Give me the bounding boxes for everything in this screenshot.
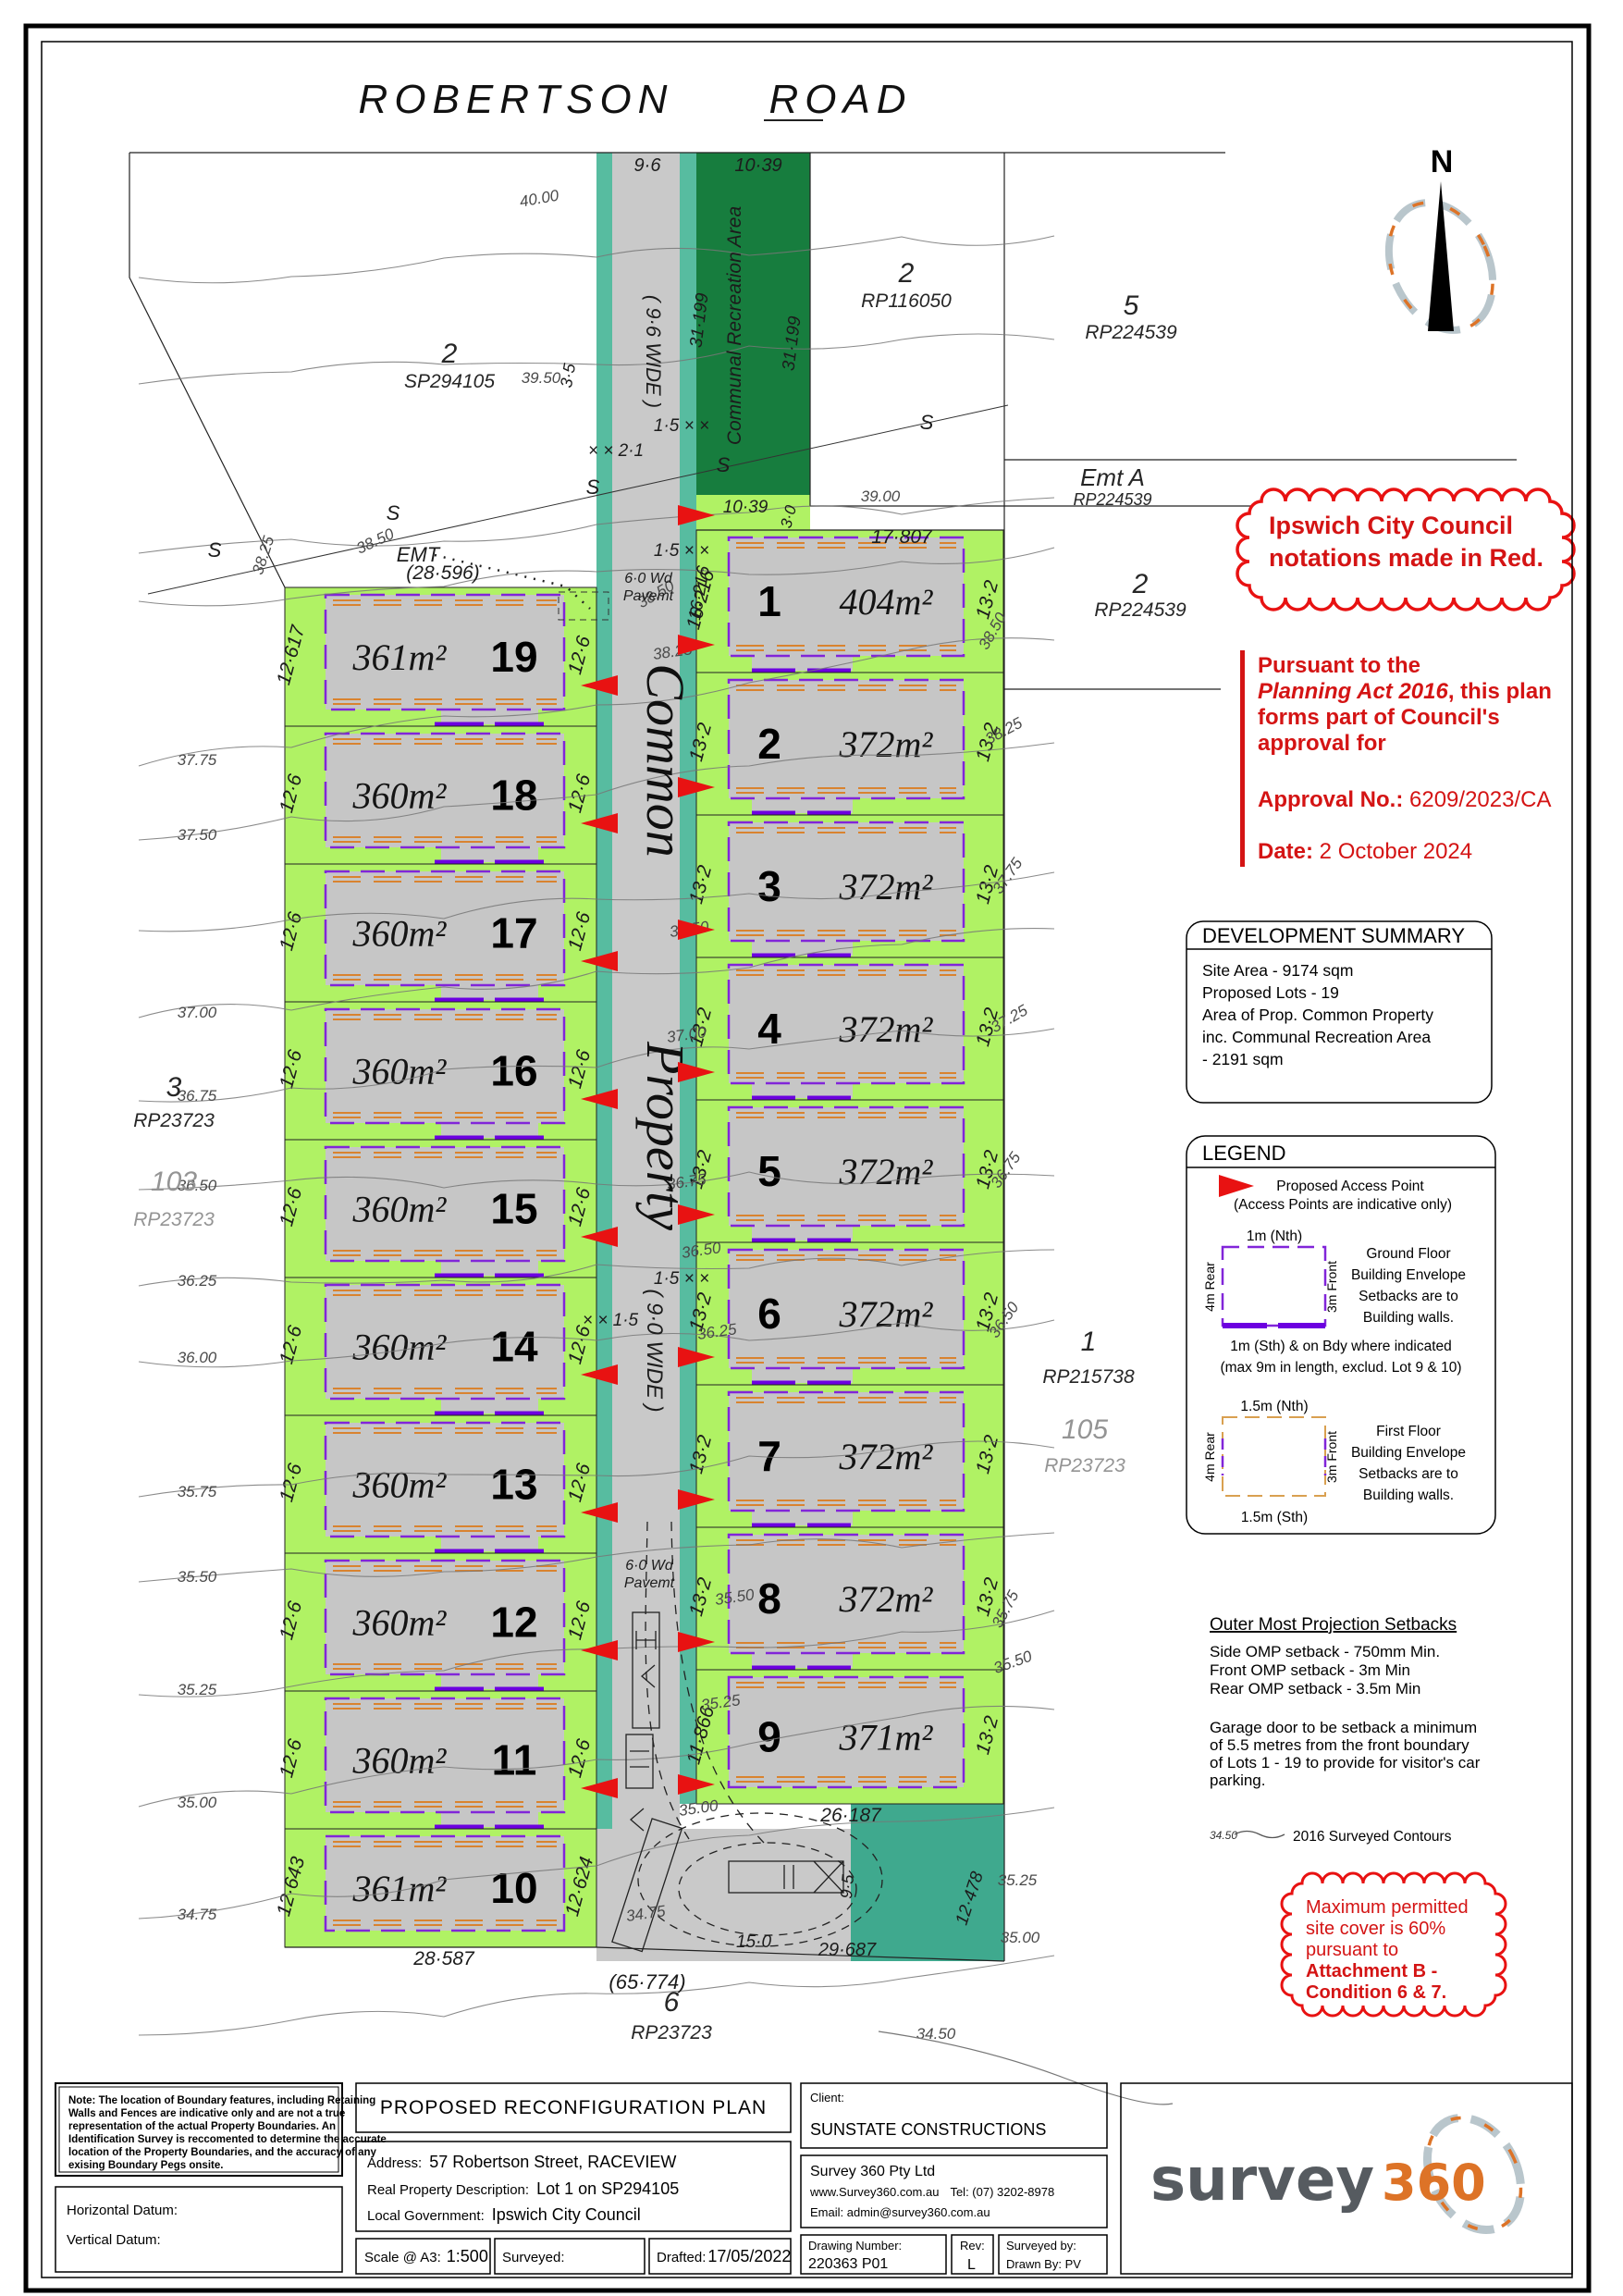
lot-number: 16 [490,1047,537,1095]
plan-label: × × 2·1 [588,441,644,461]
legend-access1: Proposed Access Point [1276,1179,1424,1194]
contour-label: 35.50 [178,1568,217,1586]
lot-number: 17 [490,909,537,957]
lot-number: 8 [757,1574,781,1623]
legend-gtext: Setbacks are to [1359,1289,1458,1304]
lot-area: 372m² [839,1293,934,1335]
cover-line: Maximum permitted [1306,1897,1469,1918]
legend-gtext: Building Envelope [1351,1267,1466,1283]
contour-label: 38.25 [249,534,277,577]
lot-2: 2372m²13·213·228·194 [685,673,1003,837]
adjoining-parcel-6: 6RP23723 [631,1987,712,2043]
lot-area: 372m² [839,1436,934,1477]
title-block: Note: The location of Boundary features,… [55,2083,1572,2274]
legend-gtext: Ground Floor [1366,1246,1450,1262]
approval-no: Approval No.: 6209/2023/CA [1258,787,1551,812]
contour-key: 34.50 2016 Surveyed Contours [1210,1829,1452,1845]
contour-label: 34.50 [916,2025,956,2043]
local-govt-row: Local Government:Ipswich City Council [367,2205,641,2224]
vertical-datum: Vertical Datum: [67,2232,161,2248]
adjoining-parcel-Emt A: Emt ARP224539 [1073,463,1151,509]
contour-key-label: 2016 Surveyed Contours [1293,1829,1452,1845]
plan-label: 6·0 Wd [624,571,673,586]
note-line: location of the Property Boundaries, and… [68,2147,377,2158]
surveyed-cell: Surveyed: [502,2250,565,2265]
plan-label: 29·687 [818,1940,877,1960]
client-name: SUNSTATE CONSTRUCTIONS [810,2120,1046,2139]
red-bar [1240,650,1245,867]
contour-label: 37.50 [178,826,217,844]
legend-note2: (max 9m in length, exclud. Lot 9 & 10) [1220,1360,1461,1376]
parcel-plan: RP23723 [133,1209,215,1230]
adjoining-parcel-2: 2RP224539 [1094,569,1187,621]
lot-8: 8372m²13·213·228·189 [685,1527,1003,1692]
lot-area: 360m² [352,1602,448,1644]
plan-label: S [717,453,731,476]
lot-number: 18 [490,772,537,820]
contour-line [139,1956,1054,2035]
rev-value: L [967,2257,976,2273]
note-line: representation of the actual Property Bo… [68,2121,336,2132]
drawing-number-label: Drawing Number: [808,2239,902,2253]
plan-label: S [208,538,222,562]
pursuant-l3: forms part of Council's [1258,705,1500,730]
logo-survey-text: survey [1150,2146,1374,2215]
contour-key-squiggle [1235,1832,1285,1838]
omp-line: Rear OMP setback - 3.5m Min [1210,1680,1420,1697]
parcel-lot: 2 [441,339,458,369]
parcel-lot: 105 [1062,1414,1108,1445]
lot-10: 10361m²12·64312·62428·587 [273,1829,597,1969]
lot-number: 7 [757,1432,781,1480]
lot-number: 11 [492,1736,537,1784]
contour-key-value: 34.50 [1210,1829,1237,1842]
dev-line: Site Area - 9174 sqm [1202,961,1353,980]
adjoining-parcel-1: 1RP215738 [1042,1327,1135,1388]
plan-label: ( 9·0 WIDE ) [642,1289,667,1412]
omp-title: Outer Most Projection Setbacks [1210,1615,1457,1635]
plan-label: 9·6 [634,155,662,176]
legend-ftext: First Floor [1376,1424,1441,1439]
drafted-cell: Drafted:17/05/2022 [657,2247,791,2265]
logo-360-text: 360 [1382,2154,1486,2212]
parcel-lot: 2 [1132,569,1149,599]
legend-ground-right: 3m Front [1324,1261,1339,1313]
lot-7: 7372m²13·213·228·190 [685,1385,1003,1549]
contour-label: 39.50 [522,369,561,387]
legend-ground-left: 4m Rear [1202,1262,1217,1312]
road-verge-west [596,153,612,1850]
lot-1: 1404m²16·21613·228·19517·807 [682,526,1003,695]
garage-note: Garage door to be setback a minimum [1210,1719,1477,1736]
lot-number: 1 [757,577,781,625]
lot-area: 372m² [839,1578,934,1620]
lot-17: 17360m²12·612·628·593 [276,864,596,1024]
legend-ftext: Setbacks are to [1359,1466,1458,1482]
adjoining-parcel-105: 105RP23723 [1044,1414,1125,1476]
legend-note1: 1m (Sth) & on Bdy where indicated [1230,1339,1452,1354]
parcel-lot: 6 [664,1987,680,2018]
lot-number: 3 [757,862,781,910]
road-verge-east [680,153,696,1804]
client-label: Client: [810,2091,844,2105]
contour-label: 35.25 [998,1871,1038,1889]
contour-label: 35.25 [178,1681,217,1698]
north-label: N [1431,144,1454,179]
contour-label: 34.75 [178,1906,217,1923]
lot-number: 6 [757,1290,781,1338]
drawn-by: Drawn By: PV [1006,2257,1081,2271]
pursuant-l4: approval for [1258,731,1386,756]
survey360-logo: survey 360 [1150,2102,1540,2246]
lot-dim-bottom: 28·587 [412,1948,475,1969]
firm-contact: www.Survey360.com.auTel: (07) 3202-8978 [809,2185,1054,2199]
cover-line: pursuant to [1306,1940,1398,1960]
pursuant-l2: Planning Act 2016, this plan [1258,679,1552,704]
cover-bold: Attachment B - [1306,1961,1437,1981]
legend-access2: (Access Points are indicative only) [1234,1197,1452,1213]
plan-label: 1·5 × × [654,416,709,436]
lot-area: 360m² [352,1464,448,1506]
contour-label: 35.00 [1001,1929,1040,1946]
lot-area: 372m² [839,723,934,765]
lot-area: 404m² [840,581,934,623]
garage-note: parking. [1210,1771,1265,1789]
parcel-plan: RP215738 [1042,1366,1135,1388]
legend-ground-top: 1m (Nth) [1247,1228,1302,1244]
dev-summary-title: DEVELOPMENT SUMMARY [1202,924,1465,947]
pursuant-l1: Pursuant to the [1258,653,1420,678]
legend-first-top: 1.5m (Nth) [1240,1399,1308,1414]
plan-label: Pavemt [624,1575,675,1591]
contour-label: 40.00 [518,186,560,210]
dev-line: - 2191 sqm [1202,1050,1284,1068]
rev-label: Rev: [960,2239,985,2253]
legend-ftext: Building walls. [1363,1487,1454,1503]
note-line: exising Boundary Pegs onsite. [68,2160,223,2171]
lot-area: 360m² [352,1740,448,1782]
contour-label: 37.75 [178,751,217,769]
lot-area: 371m² [839,1717,934,1759]
parcel-plan: RP116050 [861,290,952,312]
lot-4: 4372m²13·213·228·193 [685,957,1003,1122]
drawing-title: PROPOSED RECONFIGURATION PLAN [380,2097,767,2118]
plan-label: 15·0 [736,1932,771,1952]
legend-box: LEGEND Proposed Access Point (Access Poi… [1187,1136,1495,1534]
lot-3: 3372m²13·213·228·193 [685,815,1003,980]
development-summary: DEVELOPMENT SUMMARY Site Area - 9174 sqm… [1187,921,1492,1103]
lot-number: 12 [490,1599,537,1647]
lot-14: 14360m²12·612·628·591 [276,1278,596,1438]
drawing-number: 220363 P01 [808,2256,888,2272]
note-line: Walls and Fences are indicative only and… [68,2108,345,2119]
lot-12: 12360m²12·612·628·589 [276,1553,596,1713]
legend-first-bottom: 1.5m (Sth) [1241,1510,1308,1525]
parcel-lot: Emt A [1080,463,1145,491]
lot-number: 14 [490,1323,538,1371]
plan-label: 6·0 Wd [625,1558,674,1574]
pursuant-note: Pursuant to the Planning Act 2016, this … [1240,650,1552,867]
plan-label: 10·39 [734,155,781,176]
plan-sheet: 19361m²12·61712·628·59518360m²12·612·628… [0,0,1623,2296]
contour-label: 37.00 [178,1004,217,1021]
legend-first-right: 3m Front [1324,1431,1339,1483]
plan-label: S [920,411,934,434]
parcel-plan: RP23723 [1044,1455,1125,1476]
scale-row: Scale @ A3:1:500 [364,2247,488,2265]
parcel-plan: RP224539 [1094,599,1187,621]
contour-label: 38.50 [353,525,397,557]
lot-area: 360m² [352,1327,448,1368]
plan-label: 39.00 [861,488,901,505]
ipswich-notation-box: Ipswich City Council notations made in R… [1237,489,1574,610]
omp-line: Side OMP setback - 750mm Min. [1210,1643,1440,1660]
contour-label: 35.75 [178,1483,217,1500]
dev-line: inc. Communal Recreation Area [1202,1028,1431,1046]
lot-number: 2 [757,720,781,768]
parcel-plan: SP294105 [404,371,495,392]
lot-5: 5372m²13·213·228·192 [685,1100,1003,1265]
parcel-lot: 3 [166,1072,182,1103]
garage-note: of Lots 1 - 19 to provide for visitor's … [1210,1754,1481,1771]
plan-label: (28·596) [406,562,479,584]
road-title-word1: ROBERTSON [359,77,674,122]
lot-area: 372m² [839,1151,934,1192]
parcel-plan: RP23723 [631,2022,712,2043]
legend-gtext: Building walls. [1363,1310,1454,1326]
plan-label: Common [635,663,695,857]
plan-label: Pavemt [623,588,674,604]
contour-label: 36.25 [178,1272,217,1290]
plan-label: 1·5 × × [654,1269,709,1289]
lot-area: 360m² [352,913,448,955]
road-title-word2: ROAD [768,77,912,122]
plan-label: 3·5 [557,361,579,389]
lot-11: 11360m²12·612·628·588 [276,1691,596,1851]
contour-label: 35.00 [178,1794,217,1811]
legend-title: LEGEND [1202,1142,1285,1165]
parcel-lot: 1 [1081,1327,1097,1357]
legend-ftext: Building Envelope [1351,1445,1466,1461]
lot-area: 372m² [839,1008,934,1050]
address-row: Address:57 Robertson Street, RACEVIEW [367,2153,676,2171]
lot-16: 16360m²12·612·628·592 [276,1002,596,1162]
lot-area: 361m² [352,636,448,678]
parcel-plan: RP23723 [133,1110,215,1131]
dev-line: Proposed Lots - 19 [1202,983,1339,1002]
adjoining-parcel-2: 2SP294105 [404,339,495,392]
lot-19: 19361m²12·61712·628·595 [273,587,596,748]
lot-13: 13360m²12·612·628·590 [276,1415,596,1575]
plan-label: 10·39 [723,498,768,517]
plan-drawing: 19361m²12·61712·628·59518360m²12·612·628… [0,0,1623,2296]
ipswich-line2: notations made in Red. [1269,544,1543,572]
approval-date: Date: 2 October 2024 [1258,839,1472,864]
plan-label: 9·5 [837,1873,857,1900]
horizontal-datum: Horizontal Datum: [67,2203,178,2218]
omp-line: Front OMP setback - 3m Min [1210,1661,1410,1679]
north-arrow: N [1369,144,1512,347]
rpd-row: Real Property Description:Lot 1 on SP294… [367,2179,679,2198]
plan-label: S [586,475,600,499]
plan-label: S [387,501,400,525]
surveyed-by: Surveyed by: [1006,2239,1076,2253]
plan-label: ( 9·6 WIDE ) [642,295,665,408]
omp-setbacks: Outer Most Projection Setbacks Side OMP … [1210,1615,1481,1789]
note-line: Note: The location of Boundary features,… [68,2095,375,2106]
firm-name: Survey 360 Pty Ltd [810,2164,935,2179]
lot-18: 18360m²12·612·628·594 [276,726,596,886]
parcel-plan: RP224539 [1073,490,1151,509]
lot-number: 13 [490,1461,537,1509]
site-cover-box: Maximum permitted site cover is 60% purs… [1282,1873,1506,2016]
parcel-lot: 103 [151,1167,197,1197]
lot-area: 360m² [352,1189,448,1230]
lot-number: 5 [757,1147,781,1195]
lot-number: 9 [757,1713,781,1761]
plan-label: × × 1·5 [583,1311,639,1330]
contour-label: 36.00 [178,1349,217,1366]
lot-area: 372m² [839,866,934,907]
firm-email: Email: admin@survey360.com.au [810,2205,990,2219]
garage-note: of 5.5 metres from the front boundary [1210,1736,1469,1754]
contour-label: 36.75 [178,1087,217,1105]
parcel-lot: 2 [898,258,915,289]
north-needle [1428,181,1454,331]
parcel-plan: RP224539 [1085,322,1177,343]
lot-area: 361m² [352,1868,448,1909]
ipswich-line1: Ipswich City Council [1269,512,1513,539]
legend-first-left: 4m Rear [1202,1432,1217,1482]
note-line: Identification Survey is reccomented to … [68,2134,387,2145]
adjoining-parcel-5: 5RP224539 [1085,290,1177,343]
parcel-lot: 5 [1124,290,1139,321]
lot-number: 15 [490,1185,537,1233]
plan-label: Communal Recreation Area [724,206,745,445]
cover-line: site cover is 60% [1306,1919,1445,1939]
plan-label: 1·5 × × [654,541,709,561]
dev-line: Area of Prop. Common Property [1202,1006,1433,1024]
adjoining-parcel-2: 2RP116050 [861,258,952,312]
cover-bold: Condition 6 & 7. [1306,1982,1446,2003]
lot-number: 19 [490,633,537,681]
